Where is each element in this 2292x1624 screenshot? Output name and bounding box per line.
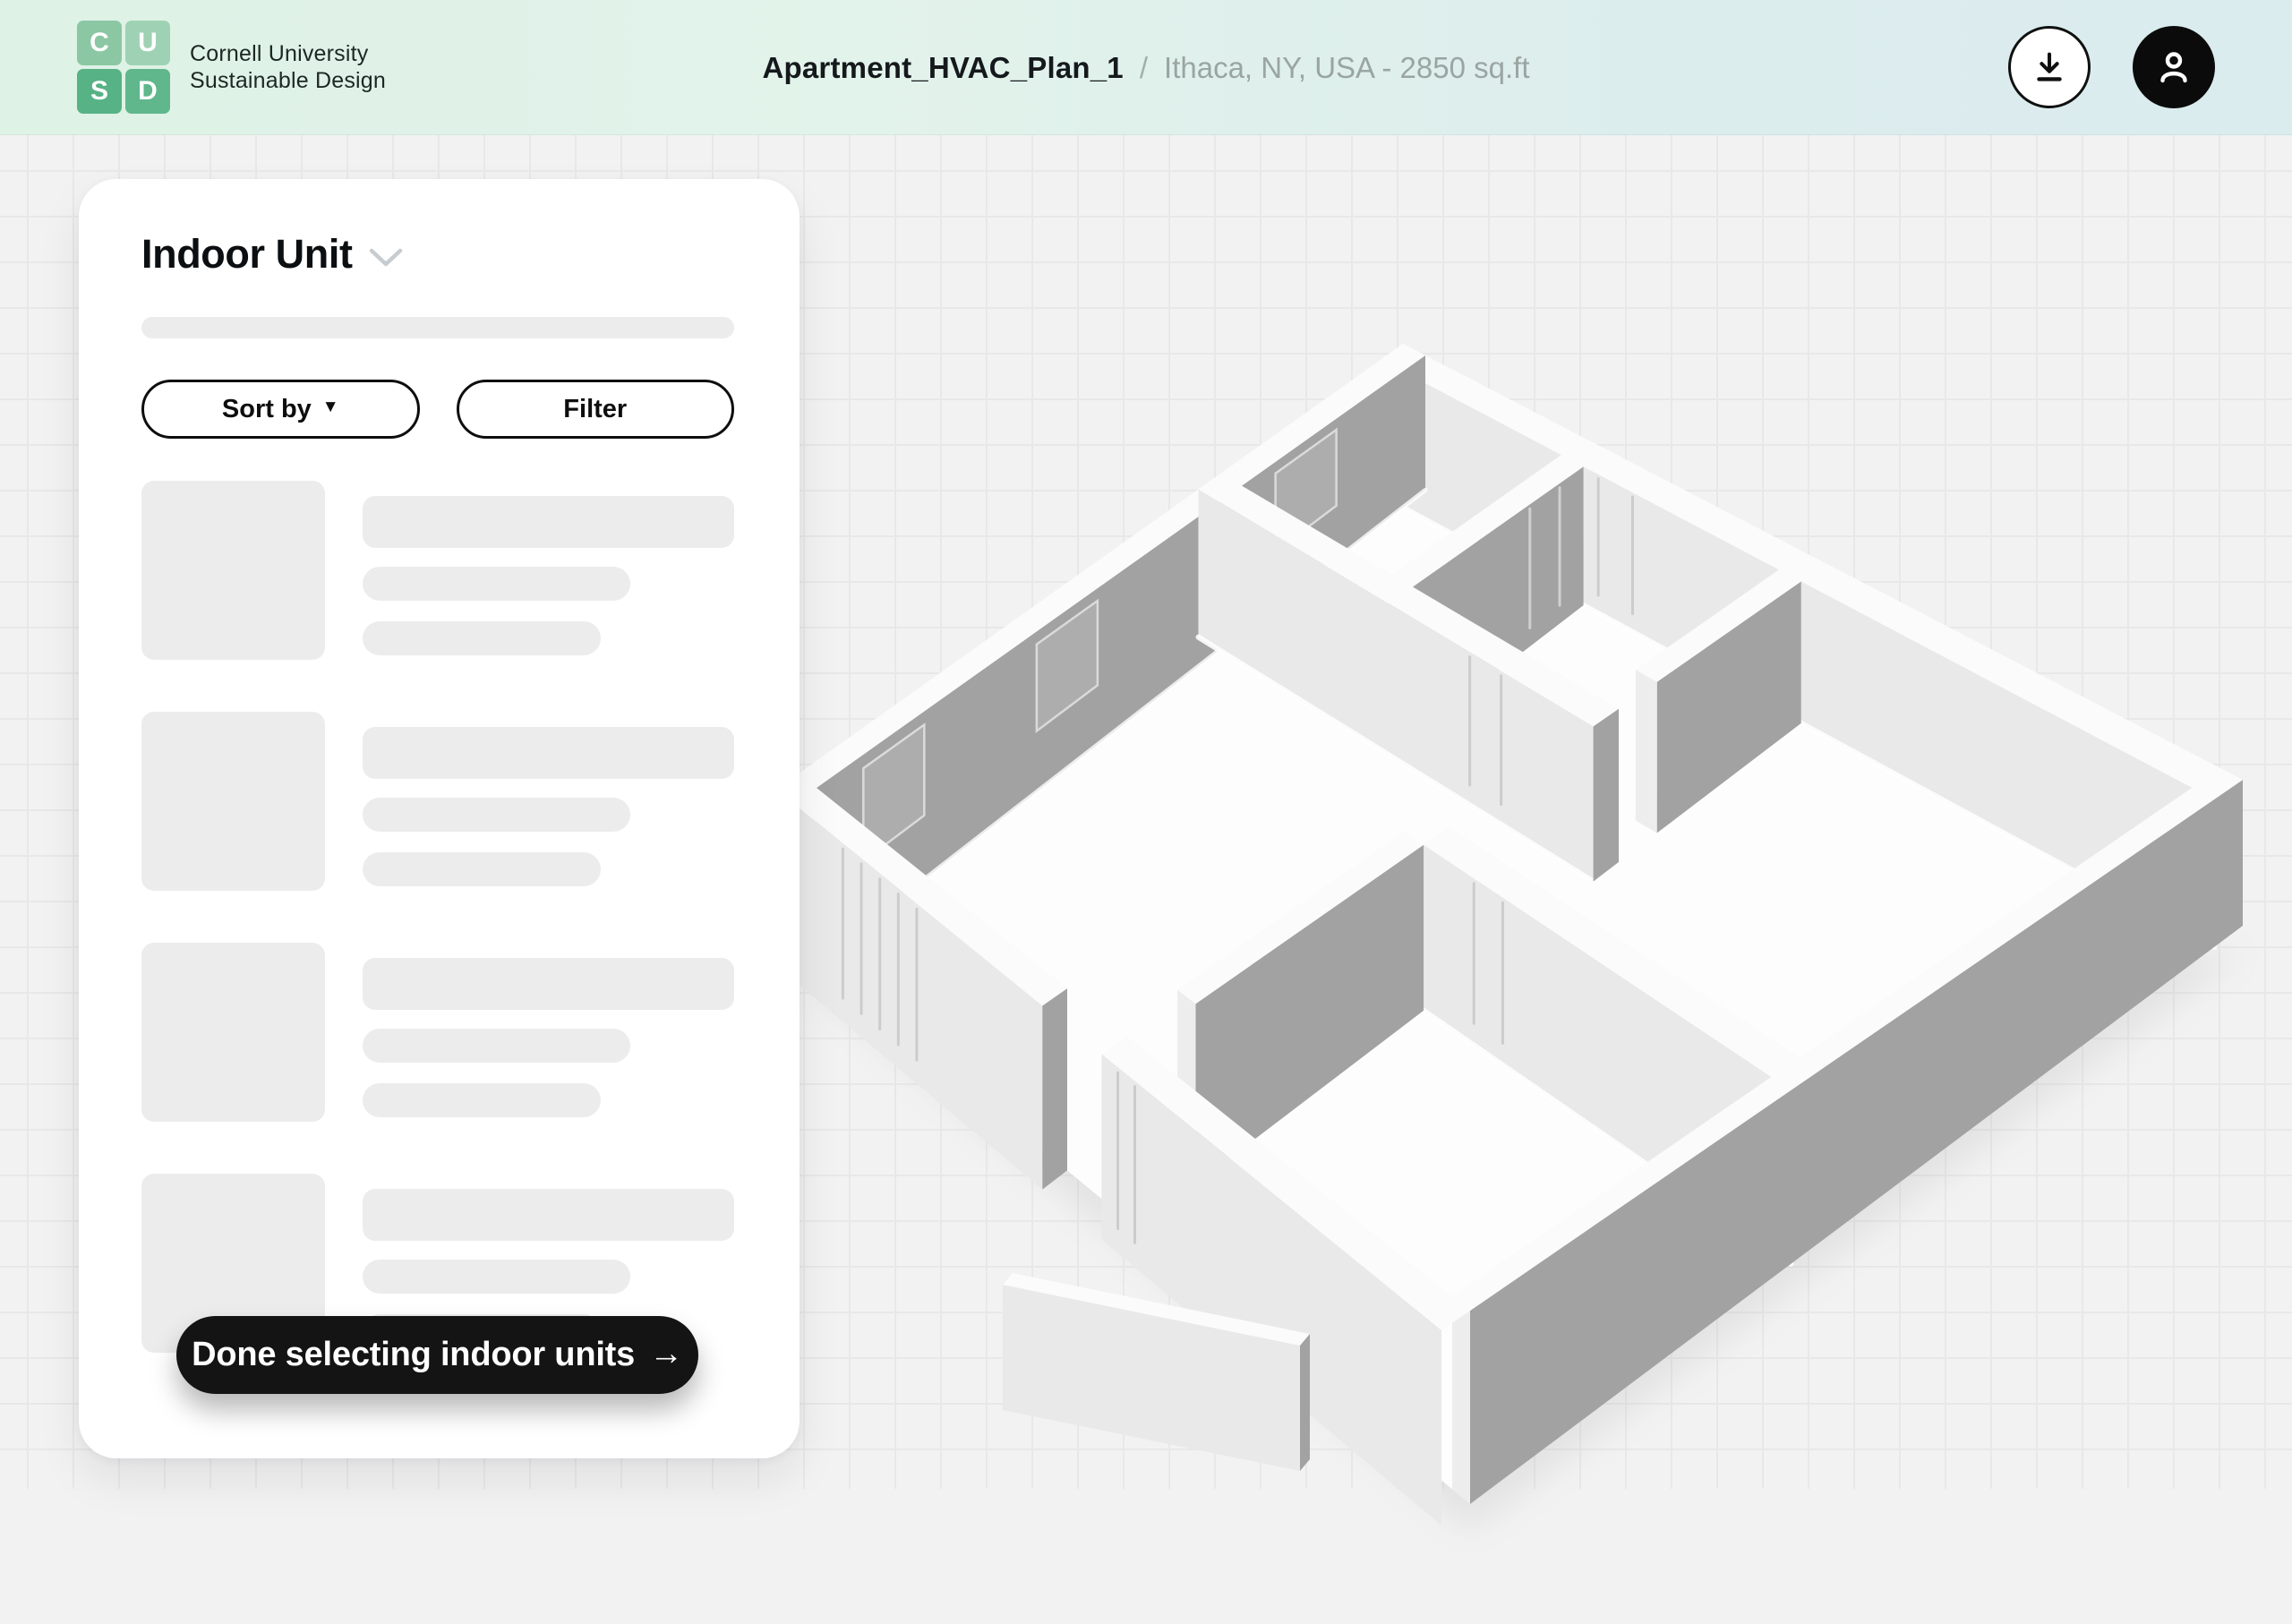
indoor-unit-panel: Indoor Unit Sort by ▼ Filter Done select…	[79, 179, 800, 1458]
skeleton-line-2	[363, 798, 630, 832]
panel-title: Indoor Unit	[141, 231, 353, 278]
logo-tile-s: S	[77, 69, 122, 114]
download-button[interactable]	[2008, 26, 2091, 108]
app-header: C U S D Cornell University Sustainable D…	[0, 0, 2292, 135]
skeleton-list-item	[141, 943, 734, 1122]
profile-button[interactable]	[2133, 26, 2215, 108]
plan-location-size: Ithaca, NY, USA - 2850 sq.ft	[1164, 51, 1529, 85]
caret-down-icon: ▼	[322, 397, 339, 417]
skeleton-list	[141, 481, 734, 1353]
org-name-line1: Cornell University	[190, 40, 386, 67]
panel-header: Indoor Unit	[141, 231, 734, 278]
entry-wall-cap	[1300, 1334, 1310, 1471]
skeleton-line-3	[363, 852, 601, 886]
download-icon	[2029, 47, 2070, 88]
cusd-logo: C U S D	[77, 21, 170, 114]
filter-button[interactable]: Filter	[457, 380, 735, 439]
skeleton-line-2	[363, 567, 630, 601]
brand[interactable]: C U S D Cornell University Sustainable D…	[77, 21, 386, 114]
skeleton-line-1	[363, 727, 734, 779]
skeleton-line-1	[363, 958, 734, 1010]
logo-tile-c: C	[77, 21, 122, 65]
filter-button-label: Filter	[563, 395, 627, 424]
user-icon	[2152, 46, 2195, 89]
chevron-down-icon[interactable]	[369, 247, 403, 269]
skeleton-thumbnail	[141, 481, 325, 660]
header-actions	[2008, 26, 2215, 108]
list-controls: Sort by ▼ Filter	[141, 380, 734, 439]
skeleton-line-1	[363, 1189, 734, 1241]
skeleton-line-2	[363, 1029, 630, 1063]
skeleton-list-item	[141, 481, 734, 660]
skeleton-line-3	[363, 1083, 601, 1117]
logo-tile-u: U	[125, 21, 170, 65]
org-name-line2: Sustainable Design	[190, 67, 386, 94]
skeleton-line-2	[363, 1260, 630, 1294]
sort-button-label: Sort by	[222, 395, 312, 424]
skeleton-list-item	[141, 712, 734, 891]
skeleton-line-1	[363, 496, 734, 548]
done-button[interactable]: Done selecting indoor units →	[176, 1316, 698, 1394]
skeleton-line-3	[363, 621, 601, 655]
skeleton-text-lines	[363, 943, 734, 1122]
skeleton-thumbnail	[141, 712, 325, 891]
arrow-right-icon: →	[649, 1335, 683, 1373]
skeleton-text-lines	[363, 481, 734, 660]
search-skeleton	[141, 317, 734, 338]
org-name: Cornell University Sustainable Design	[190, 40, 386, 94]
done-button-label: Done selecting indoor units	[192, 1336, 635, 1374]
sort-button[interactable]: Sort by ▼	[141, 380, 420, 439]
skeleton-thumbnail	[141, 943, 325, 1122]
logo-tile-d: D	[125, 69, 170, 114]
plan-title: Apartment_HVAC_Plan_1	[762, 51, 1123, 85]
breadcrumb-separator: /	[1140, 51, 1148, 85]
skeleton-text-lines	[363, 712, 734, 891]
